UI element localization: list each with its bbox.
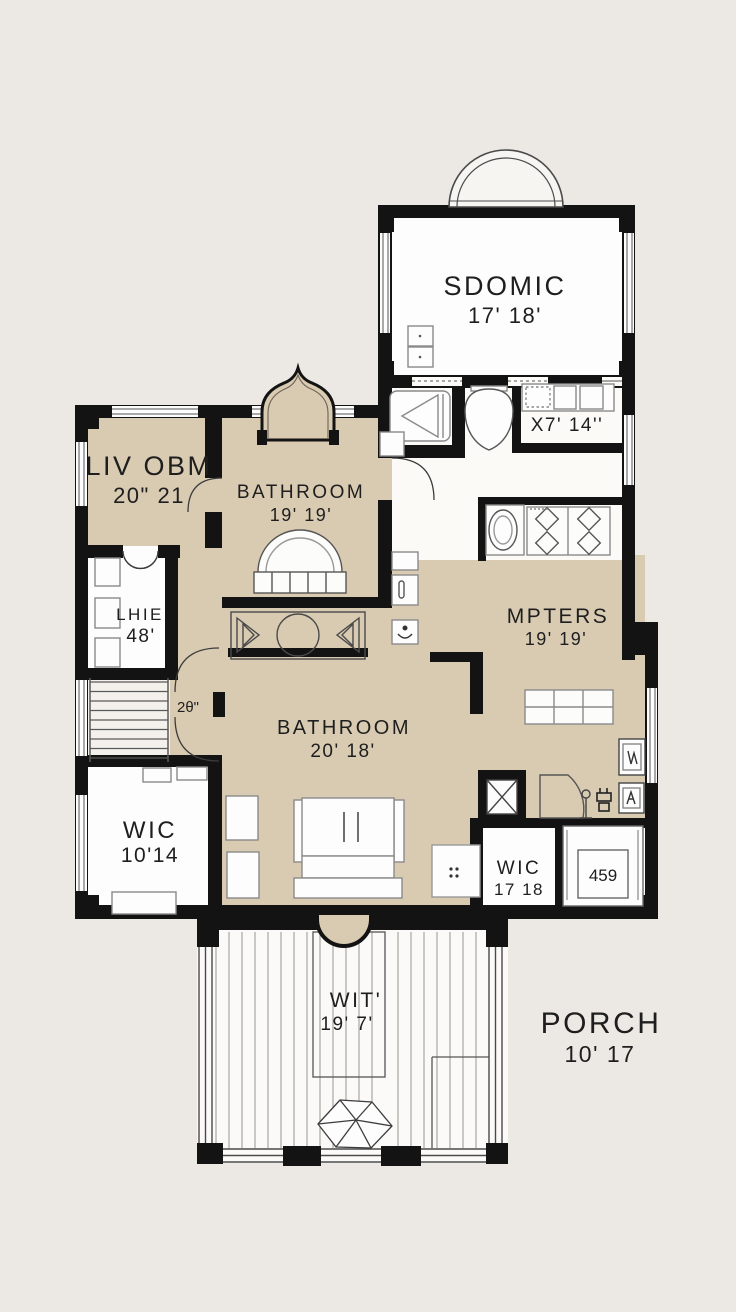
dims-linen-closet: 48' (126, 626, 155, 647)
label-upper-bathroom: BATHROOM (237, 482, 365, 503)
shaft-x-icon (487, 780, 517, 814)
switch-panel-icon (408, 326, 433, 367)
dims-living: 20" 21 (113, 483, 185, 508)
dims-wic-left: 10'14 (121, 844, 179, 867)
label-main-bathroom: BATHROOM (277, 717, 411, 739)
label-bed-number: 459 (589, 866, 617, 885)
dims-wic-right: 17 18 (494, 880, 544, 899)
floor-plan: SDOMIC 17' 18' X7' 14'' LIV OBM 20" 21 B… (0, 0, 736, 1312)
stove-burners-icon (527, 507, 610, 555)
dims-upper-bathroom: 19' 19' (270, 505, 332, 525)
masters-table-icon (525, 690, 613, 724)
label-masters: MPTERS (507, 605, 610, 628)
dims-closet-x7: X7' 14'' (531, 415, 604, 436)
bed-icon (522, 384, 614, 411)
label-living: LIV OBM (85, 451, 212, 481)
pillow-icon (554, 386, 576, 409)
label-linen-closet: LHIE (116, 605, 164, 624)
sink-vanity-icon (486, 505, 524, 555)
door-gap (123, 546, 158, 557)
dims-deck: 19' 7' (320, 1014, 373, 1035)
dresser-icon (112, 892, 176, 914)
pillow-icon (580, 386, 603, 409)
vent-dots-icon (432, 845, 480, 897)
label-wic-left: WIC (123, 817, 177, 844)
wall-fixture-icon (392, 552, 418, 644)
label-deck: WIT' (330, 989, 383, 1012)
dims-porch: 10' 17 (565, 1041, 636, 1067)
dims-masters: 19' 19' (525, 629, 587, 649)
dims-main-bathroom: 20' 18' (310, 741, 375, 762)
label-door-width: 2θ" (177, 699, 199, 716)
label-wic-right: WIC (497, 858, 541, 879)
dims-top-bedroom: 17' 18' (468, 303, 542, 328)
sofa-icon (294, 798, 404, 898)
label-top-bedroom: SDOMIC (444, 271, 567, 301)
label-porch: PORCH (541, 1007, 662, 1040)
